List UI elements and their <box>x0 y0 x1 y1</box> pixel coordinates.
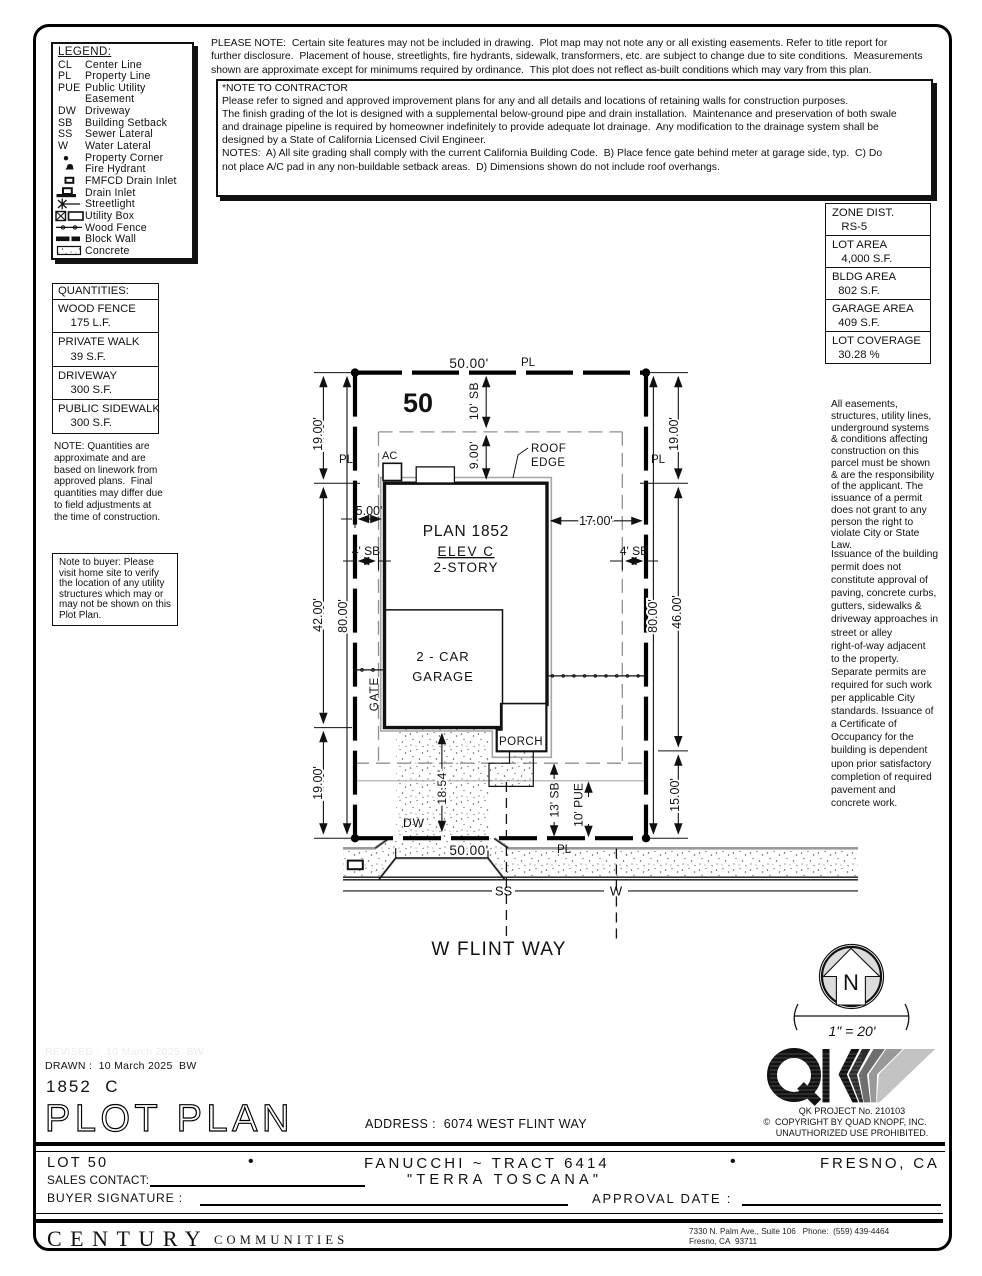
svg-text:PLAN 1852: PLAN 1852 <box>423 523 509 540</box>
svg-text:4' SB: 4' SB <box>620 544 648 558</box>
svg-text:50.00': 50.00' <box>449 356 488 371</box>
svg-text:42.00': 42.00' <box>311 598 325 632</box>
svg-text:80.00': 80.00' <box>336 599 350 633</box>
svg-text:4' SB: 4' SB <box>352 544 380 558</box>
svg-text:17.00': 17.00' <box>579 514 613 528</box>
svg-text:15.00': 15.00' <box>668 778 682 812</box>
svg-text:QK PROJECT No. 210103: QK PROJECT No. 210103 <box>799 1106 905 1116</box>
svg-text:13' SB: 13' SB <box>548 783 562 818</box>
svg-text:10' PUE: 10' PUE <box>572 783 586 827</box>
svg-text:19.00': 19.00' <box>311 766 325 800</box>
svg-text:GARAGE: GARAGE <box>412 669 474 684</box>
svg-text:PL: PL <box>557 844 572 856</box>
svg-text:ROOF: ROOF <box>531 443 566 455</box>
svg-text:PORCH: PORCH <box>499 736 543 748</box>
svg-text:46.00': 46.00' <box>670 595 684 629</box>
svg-text:1" = 20': 1" = 20' <box>829 1023 877 1039</box>
svg-text:50.00': 50.00' <box>449 843 488 858</box>
svg-text:GATE: GATE <box>369 677 381 711</box>
svg-text:DW: DW <box>403 816 425 830</box>
svg-text:AC: AC <box>382 450 397 462</box>
svg-text:© COPYRIGHT BY QUAD KNOPF, IN: © COPYRIGHT BY QUAD KNOPF, INC. <box>763 1117 926 1127</box>
svg-text:SS: SS <box>495 884 513 899</box>
svg-text:9.00': 9.00' <box>467 441 481 469</box>
svg-text:ELEV C: ELEV C <box>437 544 494 559</box>
svg-text:UNAUTHORIZED USE PROHIBITED.: UNAUTHORIZED USE PROHIBITED. <box>776 1128 929 1138</box>
svg-text:10' SB: 10' SB <box>467 382 481 420</box>
svg-text:19.00': 19.00' <box>311 417 325 451</box>
svg-text:PL: PL <box>339 454 354 466</box>
svg-text:N: N <box>843 970 859 995</box>
svg-text:2-STORY: 2-STORY <box>433 560 498 575</box>
svg-text:80.00': 80.00' <box>646 599 660 633</box>
svg-text:2 - CAR: 2 - CAR <box>416 649 469 664</box>
svg-text:19.00': 19.00' <box>667 417 681 451</box>
svg-text:50: 50 <box>403 388 433 418</box>
svg-text:18.54': 18.54' <box>435 769 449 804</box>
svg-text:EDGE: EDGE <box>531 457 566 469</box>
svg-text:W FLINT WAY: W FLINT WAY <box>431 939 566 960</box>
svg-text:PL: PL <box>521 357 536 369</box>
svg-text:5.00': 5.00' <box>356 504 383 518</box>
